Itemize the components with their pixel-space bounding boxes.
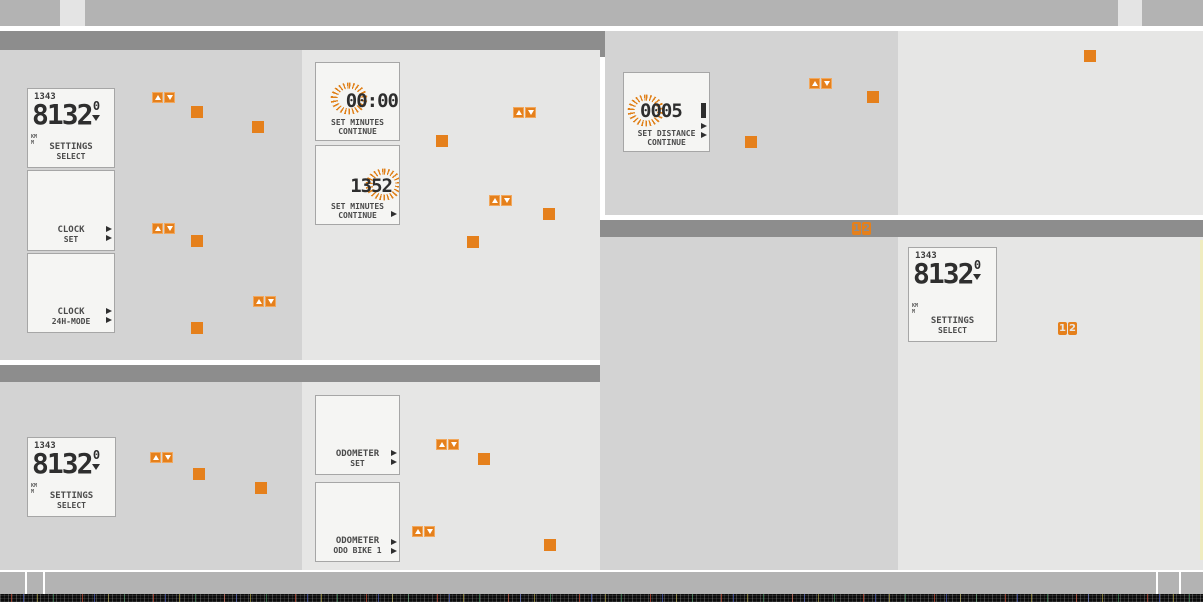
down-button-icon	[525, 107, 536, 118]
badge-1-icon: 1	[852, 222, 861, 235]
blink-arrow-icon	[391, 211, 397, 217]
button-press-marker	[252, 121, 264, 133]
lcd-menu-text: SETTINGS SELECT	[28, 142, 114, 162]
bike-1-2-badge-icon: 1 2	[852, 222, 871, 235]
lcd-menu-text: SETTINGS SELECT	[909, 316, 996, 336]
footer-fine-print	[0, 594, 1203, 602]
button-press-marker	[191, 235, 203, 247]
down-indicator-icon	[92, 464, 100, 470]
lcd-menu-text: ODOMETER SET	[316, 449, 399, 469]
badge-2-icon: 2	[862, 222, 871, 235]
down-button-icon	[164, 92, 175, 103]
panel-distance-right	[898, 31, 1203, 215]
down-button-icon	[162, 452, 173, 463]
lcd-settings-select: 1343 8132 0 KMM SETTINGS SELECT	[27, 437, 116, 517]
button-press-marker	[255, 482, 267, 494]
up-button-icon	[150, 452, 161, 463]
lcd-set-minutes-adjust: 1352 SET MINUTES CONTINUE	[315, 145, 400, 225]
lcd-set-distance: 0005 SET DISTANCE CONTINUE	[623, 72, 710, 152]
down-button-icon	[424, 526, 435, 537]
up-down-buttons-icon	[152, 223, 175, 234]
up-down-buttons-icon	[809, 78, 832, 89]
lcd-clock-24h-mode: CLOCK 24H-MODE	[27, 253, 115, 333]
button-press-marker	[543, 208, 555, 220]
lcd-main-value: 8132 0	[913, 260, 981, 287]
up-down-buttons-icon	[489, 195, 512, 206]
footer-bar	[0, 572, 1203, 594]
up-down-buttons-icon	[150, 452, 173, 463]
lcd-menu-text: SET DISTANCE CONTINUE	[624, 129, 709, 147]
lcd-main-value: 8132 0	[32, 101, 100, 128]
button-press-marker	[191, 322, 203, 334]
button-press-marker	[436, 135, 448, 147]
top-bar-tab-left	[60, 0, 85, 26]
up-button-icon	[513, 107, 524, 118]
blink-arrows-icon	[391, 539, 397, 554]
down-button-icon	[448, 439, 459, 450]
up-button-icon	[809, 78, 820, 89]
blink-arrows-icon	[106, 226, 112, 241]
up-button-icon	[152, 92, 163, 103]
up-button-icon	[412, 526, 423, 537]
section-header-odometer-settings	[0, 365, 600, 382]
lcd-set-minutes-initial: 00:00 SET MINUTES CONTINUE	[315, 62, 400, 141]
lcd-settings-select: 1343 8132 0 KMM SETTINGS SELECT	[27, 88, 115, 168]
lcd-edit-value: 0005	[640, 102, 682, 120]
clipped-digit	[701, 103, 706, 118]
up-button-icon	[253, 296, 264, 307]
button-press-marker	[867, 91, 879, 103]
up-down-buttons-icon	[253, 296, 276, 307]
section-header-clock-settings	[0, 31, 600, 50]
lcd-unit-labels: KMM	[912, 303, 918, 315]
down-button-icon	[265, 296, 276, 307]
up-down-buttons-icon	[513, 107, 536, 118]
up-down-buttons-icon	[152, 92, 175, 103]
lcd-main-value: 8132 0	[32, 450, 100, 477]
blink-arrows-icon	[106, 308, 112, 323]
up-button-icon	[489, 195, 500, 206]
down-indicator-icon	[92, 115, 100, 121]
blink-arrows-icon	[391, 450, 397, 465]
button-press-marker	[467, 236, 479, 248]
down-button-icon	[164, 223, 175, 234]
top-bar	[0, 0, 1203, 26]
up-button-icon	[152, 223, 163, 234]
lcd-menu-text: SET MINUTES CONTINUE	[316, 118, 399, 136]
button-press-marker	[478, 453, 490, 465]
badge-2-icon: 2	[1068, 322, 1077, 335]
panel-bike-select-left	[600, 237, 898, 570]
lcd-settings-select: 1343 8132 0 KMM SETTINGS SELECT	[908, 247, 997, 342]
lcd-edit-value: 00:00	[346, 92, 398, 110]
lcd-odometer-odo-bike-1: ODOMETER ODO BIKE 1	[315, 482, 400, 562]
lcd-menu-text: CLOCK 24H-MODE	[28, 307, 114, 327]
badge-1-icon: 1	[1058, 322, 1067, 335]
bike-1-2-badge-icon: 1 2	[1058, 322, 1077, 335]
lcd-clock-set: CLOCK SET	[27, 170, 115, 251]
down-button-icon	[821, 78, 832, 89]
button-press-marker	[745, 136, 757, 148]
footer-divider	[43, 572, 45, 594]
lcd-odometer-set: ODOMETER SET	[315, 395, 400, 475]
button-press-marker	[1084, 50, 1096, 62]
footer-divider	[1179, 572, 1181, 594]
lcd-menu-text: ODOMETER ODO BIKE 1	[316, 536, 399, 556]
lcd-menu-text: CLOCK SET	[28, 225, 114, 245]
up-down-buttons-icon	[436, 439, 459, 450]
button-press-marker	[191, 106, 203, 118]
blink-arrows-icon	[701, 123, 707, 138]
top-bar-tab-right	[1118, 0, 1142, 26]
footer-divider	[25, 572, 27, 594]
footer-divider	[1156, 572, 1158, 594]
down-indicator-icon	[973, 274, 981, 280]
up-down-buttons-icon	[412, 526, 435, 537]
manual-page: 1 2 1343 8132 0 KMM SETTINGS SELECT CLOC…	[0, 0, 1203, 602]
section-header-bike-select: 1 2	[600, 220, 1203, 237]
lcd-edit-value: 1352	[350, 177, 392, 195]
up-button-icon	[436, 439, 447, 450]
down-button-icon	[501, 195, 512, 206]
lcd-menu-text: SETTINGS SELECT	[28, 491, 115, 511]
lcd-menu-text: SET MINUTES CONTINUE	[316, 202, 399, 220]
button-press-marker	[544, 539, 556, 551]
button-press-marker	[193, 468, 205, 480]
